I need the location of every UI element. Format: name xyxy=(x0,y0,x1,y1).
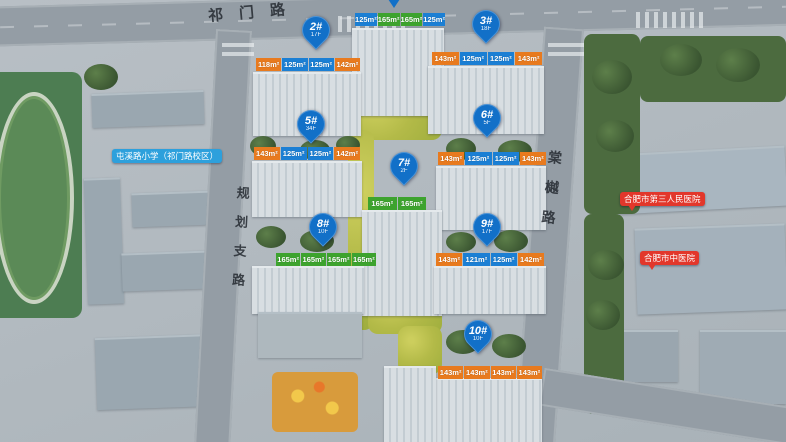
hospital-label-2: 合肥市中医院 xyxy=(640,251,699,265)
area-tag: 143m² xyxy=(464,366,489,379)
area-tag: 142m² xyxy=(518,253,544,266)
area-tag: 165m² xyxy=(352,253,376,266)
pin-content: 3# 18F xyxy=(472,10,500,38)
building-pin-top-partial[interactable] xyxy=(388,0,400,8)
area-tag: 125m² xyxy=(491,253,517,266)
tree xyxy=(592,60,632,94)
pin-content: 9# 17F xyxy=(473,213,501,241)
area-tag-row-top-building: 125m²165m²165m²125m² xyxy=(355,13,445,26)
pin-number: 3# xyxy=(480,16,492,26)
pin-floors: 5F xyxy=(483,120,490,127)
area-tag: 125m² xyxy=(423,13,445,26)
pin-content: 10# 10F xyxy=(464,320,492,348)
building-pin-7[interactable]: 7# 2F xyxy=(384,146,424,186)
tree xyxy=(586,300,620,330)
tree-band xyxy=(640,36,786,102)
building-pin-2[interactable]: 2# 17F xyxy=(296,10,336,50)
school-building xyxy=(121,250,210,291)
area-tag: 143m² xyxy=(438,366,463,379)
area-tag-row-6: 143m²125m²125m²143m² xyxy=(438,152,546,165)
area-tag: 125m² xyxy=(281,147,307,160)
area-tag: 143m² xyxy=(438,152,464,165)
area-tag: 143m² xyxy=(520,152,546,165)
pin-number: 5# xyxy=(305,116,317,126)
pin-floors: 17F xyxy=(482,229,492,236)
pin-number: 9# xyxy=(481,219,493,229)
area-tag: 143m² xyxy=(436,253,462,266)
area-tag: 125m² xyxy=(309,58,334,71)
area-tag: 125m² xyxy=(282,58,307,71)
area-tag: 125m² xyxy=(465,152,491,165)
kindergarten-building xyxy=(258,312,362,358)
area-tag: 143m² xyxy=(432,52,459,65)
area-tag: 165m² xyxy=(401,13,423,26)
area-tag-row-5: 143m²125m²125m²142m² xyxy=(254,147,360,160)
area-tag-row-10: 143m²143m²143m²143m² xyxy=(438,366,542,379)
tree xyxy=(596,120,634,152)
area-tag: 143m² xyxy=(254,147,280,160)
building-10 xyxy=(436,378,542,442)
area-tag: 125m² xyxy=(308,147,334,160)
pin-floors: 17F xyxy=(311,32,321,39)
tree xyxy=(84,64,118,90)
tree xyxy=(492,334,526,358)
area-tag: 165m² xyxy=(398,197,427,210)
site-plan-map: 125m²165m²165m²125m² 118m²125m²125m²142m… xyxy=(0,0,786,442)
area-tag: 125m² xyxy=(488,52,515,65)
pin-floors: 10F xyxy=(473,336,483,343)
area-tag: 165m² xyxy=(368,197,397,210)
pin-content: 5# 34F xyxy=(297,110,325,138)
pin-number: 7# xyxy=(398,158,410,168)
pin-number: 2# xyxy=(310,22,322,32)
area-tag: 121m² xyxy=(463,253,489,266)
area-tag: 142m² xyxy=(334,147,360,160)
area-tag: 143m² xyxy=(491,366,516,379)
building-pin-9[interactable]: 9# 17F xyxy=(467,207,507,247)
pin-floors: 10F xyxy=(318,229,328,236)
area-tag: 165m² xyxy=(301,253,325,266)
building-block xyxy=(700,330,786,404)
area-tag: 125m² xyxy=(355,13,377,26)
building-block xyxy=(384,366,436,442)
building-5 xyxy=(252,161,362,217)
area-tag-row-9: 143m²121m²125m²142m² xyxy=(436,253,544,266)
building-9 xyxy=(434,266,546,314)
hospital-building xyxy=(635,223,786,314)
building-pin-3[interactable]: 3# 18F xyxy=(466,4,506,44)
tree xyxy=(446,232,476,252)
building-pin-10[interactable]: 10# 10F xyxy=(458,314,498,354)
area-tag: 143m² xyxy=(517,366,542,379)
building-pin-8[interactable]: 8# 10F xyxy=(303,207,343,247)
school-building xyxy=(131,191,210,228)
area-tag: 125m² xyxy=(493,152,519,165)
building-pin-6[interactable]: 6# 5F xyxy=(467,98,507,138)
pin-floors: 18F xyxy=(481,26,491,33)
area-tag: 165m² xyxy=(327,253,351,266)
area-tag: 125m² xyxy=(460,52,487,65)
pin-content: 2# 17F xyxy=(302,16,330,44)
area-tag: 165m² xyxy=(276,253,300,266)
school-building xyxy=(91,90,204,128)
area-tag-row-2: 118m²125m²125m²142m² xyxy=(256,58,360,71)
hospital-label-1: 合肥市第三人民医院 xyxy=(620,192,705,206)
pin-content: 6# 5F xyxy=(473,104,501,132)
tree xyxy=(256,226,286,248)
area-tag: 143m² xyxy=(515,52,542,65)
pin-number: 8# xyxy=(317,219,329,229)
area-tag-row-3: 143m²125m²125m²143m² xyxy=(432,52,542,65)
pin-content: 7# 2F xyxy=(390,152,418,180)
crosswalk xyxy=(548,42,584,56)
area-tag: 118m² xyxy=(256,58,281,71)
kindergarten-playground xyxy=(272,372,358,432)
school-label: 屯溪路小学（祁门路校区） xyxy=(112,149,222,163)
area-tag: 142m² xyxy=(335,58,360,71)
tree xyxy=(588,250,624,280)
pin-content: 8# 10F xyxy=(309,213,337,241)
building-8 xyxy=(252,266,364,314)
tree xyxy=(716,48,760,82)
pin-number: 10# xyxy=(469,326,487,336)
tree xyxy=(660,44,702,76)
crosswalk xyxy=(636,12,708,28)
pin-number: 6# xyxy=(481,110,493,120)
crosswalk xyxy=(222,42,254,56)
area-tag-row-7: 165m²165m² xyxy=(368,197,426,210)
school-building xyxy=(84,177,124,304)
area-tag: 165m² xyxy=(378,13,400,26)
area-tag-row-8: 165m²165m²165m²165m² xyxy=(276,253,376,266)
pin-floors: 2F xyxy=(400,168,407,175)
pin-floors: 34F xyxy=(306,126,316,133)
building-pin-5[interactable]: 5# 34F xyxy=(291,104,331,144)
